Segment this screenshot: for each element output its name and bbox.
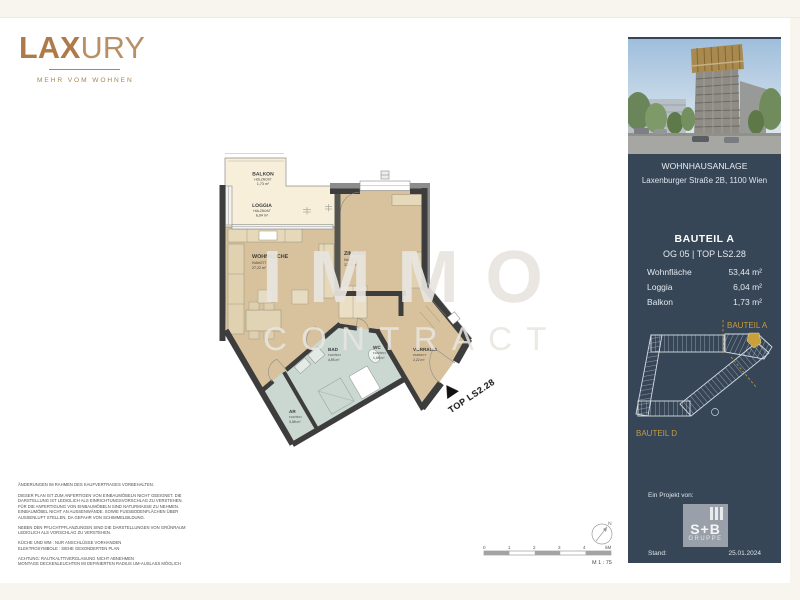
svg-text:HOLZROST: HOLZROST bbox=[254, 178, 271, 182]
svg-text:3: 3 bbox=[558, 545, 561, 550]
svg-text:HOLZROST: HOLZROST bbox=[253, 209, 270, 213]
svg-text:FLIESEN: FLIESEN bbox=[289, 415, 302, 419]
svg-text:0: 0 bbox=[483, 545, 486, 550]
svg-text:2: 2 bbox=[533, 545, 536, 550]
svg-text:2,22 m²: 2,22 m² bbox=[413, 358, 425, 362]
svg-text:4: 4 bbox=[583, 545, 586, 550]
svg-text:M 1 : 75: M 1 : 75 bbox=[592, 560, 612, 566]
svg-text:BAUTEIL D: BAUTEIL D bbox=[636, 429, 677, 438]
svg-text:IMMO: IMMO bbox=[262, 235, 569, 318]
svg-text:6,04 m²: 6,04 m² bbox=[256, 214, 269, 218]
svg-text:AR: AR bbox=[289, 409, 296, 414]
svg-text:3,08 m²: 3,08 m² bbox=[289, 420, 301, 424]
svg-text:TOP LS2.28: TOP LS2.28 bbox=[446, 377, 496, 415]
svg-text:CONTRACT: CONTRACT bbox=[263, 320, 561, 357]
svg-text:4,85 m²: 4,85 m² bbox=[328, 358, 340, 362]
svg-text:N: N bbox=[608, 521, 612, 527]
svg-text:1: 1 bbox=[508, 545, 511, 550]
svg-text:5M: 5M bbox=[605, 545, 612, 550]
svg-text:BAUTEIL A: BAUTEIL A bbox=[727, 321, 768, 330]
svg-text:1,73 m²: 1,73 m² bbox=[257, 182, 270, 186]
